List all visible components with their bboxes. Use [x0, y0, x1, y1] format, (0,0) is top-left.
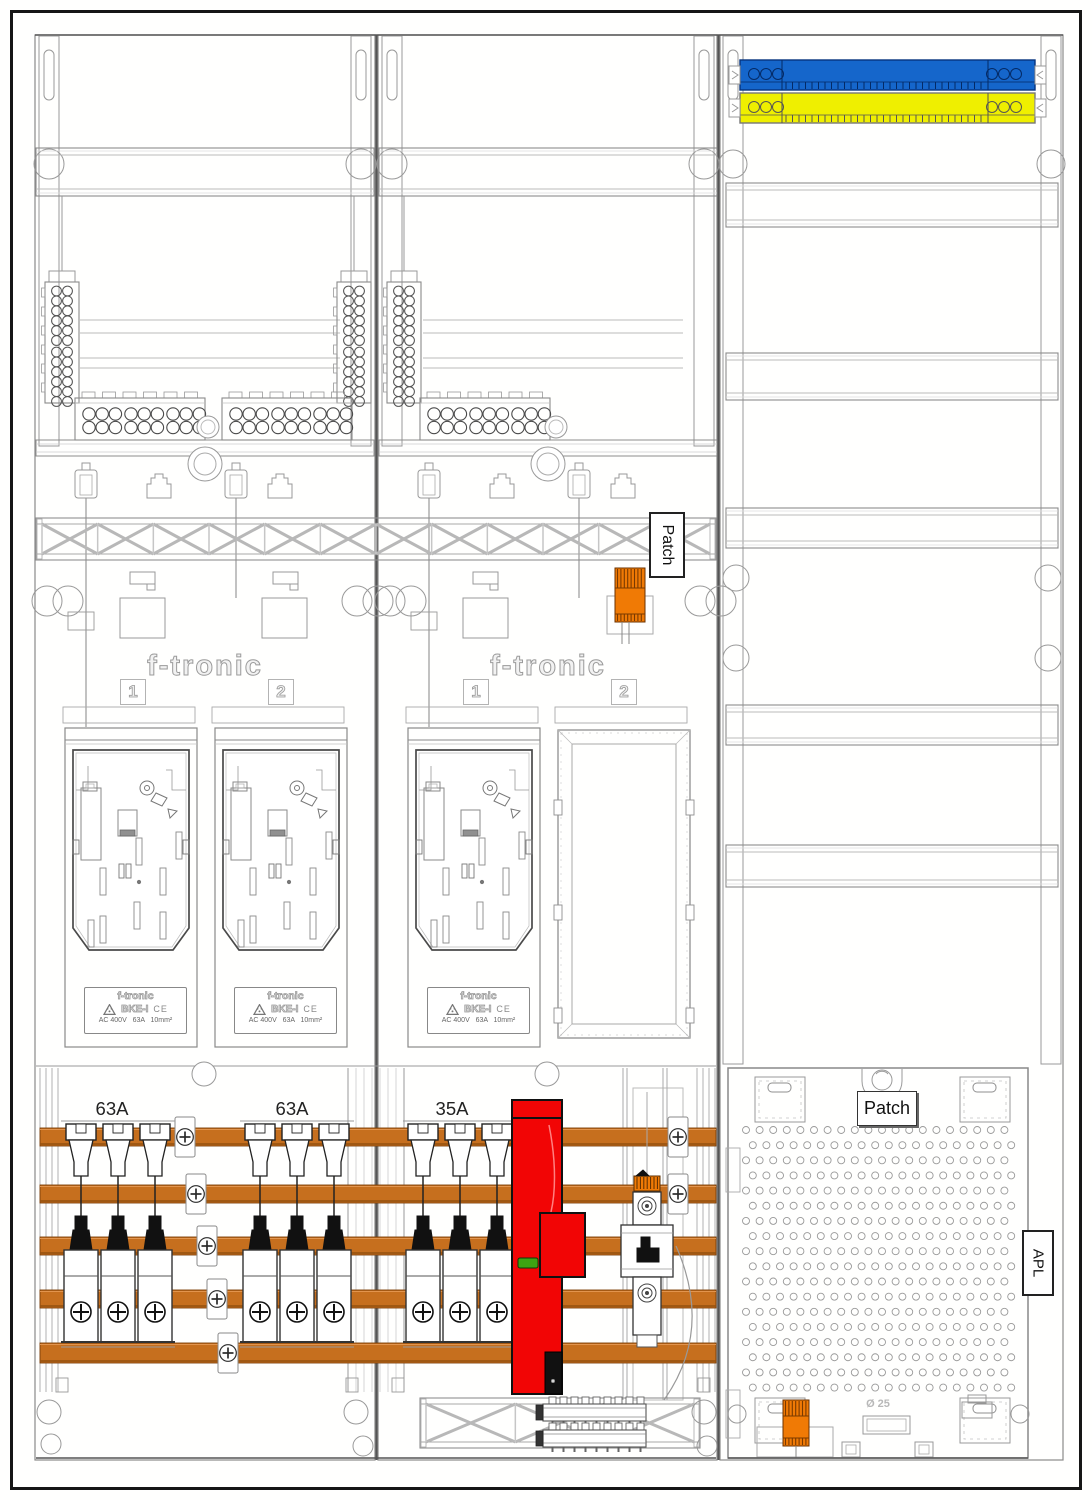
meter-nameplate: f-tronic BKE-I CE AC 400V 63A 10mm² — [427, 987, 530, 1034]
fuse-group-rating-2: 63A — [262, 1098, 322, 1120]
field-number-2-left: 2 — [268, 679, 294, 705]
fuse-switch-group — [61, 1121, 175, 1347]
apl-label-text: APL — [1030, 1249, 1047, 1277]
cabinet-linework — [0, 0, 1092, 1500]
ce-mark: CE — [153, 1004, 168, 1014]
f-tronic-triangle-logo-icon — [253, 1004, 266, 1015]
vertical-terminal-strips — [42, 196, 422, 406]
patch-label-plate: Patch — [857, 1091, 917, 1126]
nameplate-model: BKE-I — [464, 1004, 491, 1015]
field-number-1-left: 1 — [120, 679, 146, 705]
patch-terminal-block — [607, 568, 653, 644]
fuse-switch-group — [240, 1121, 354, 1347]
nameplate-brand: f-tronic — [428, 990, 529, 1002]
apl-label: APL — [1022, 1230, 1054, 1296]
top-structure-panel — [375, 36, 736, 727]
wiring-duct-upper — [36, 518, 716, 560]
meter-cabinet-drawing: f-tronic f-tronic 1 2 1 2 f-tronic BKE-I… — [0, 0, 1092, 1500]
fuse-group-rating-1: 63A — [82, 1098, 142, 1120]
top-structure-panel — [32, 36, 393, 727]
fuse-switch-group — [403, 1121, 517, 1347]
f-tronic-triangle-logo-icon — [446, 1004, 459, 1015]
empty-meter-field — [554, 730, 694, 1038]
meter-nameplate: f-tronic BKE-I CE AC 400V 63A 10mm² — [84, 987, 187, 1034]
right-panel-structure — [719, 36, 1065, 1064]
nameplate-model: BKE-I — [271, 1004, 298, 1015]
patch-label-text: Patch — [658, 525, 676, 566]
f-tronic-triangle-logo-icon — [103, 1004, 116, 1015]
meter-nameplate: f-tronic BKE-I CE AC 400V 63A 10mm² — [234, 987, 337, 1034]
nameplate-brand: f-tronic — [85, 990, 186, 1002]
ce-mark: CE — [303, 1004, 318, 1014]
nameplate-brand: f-tronic — [235, 990, 336, 1002]
horizontal-terminal-strips — [75, 392, 567, 440]
ce-mark: CE — [496, 1004, 511, 1014]
nameplate-ratings: AC 400V 63A 10mm² — [235, 1016, 336, 1026]
neutral-rail-blue — [729, 60, 1046, 90]
diameter-25-label: Ø 25 — [850, 1398, 906, 1410]
pe-rail-yellow — [729, 93, 1046, 123]
nameplate-model: BKE-I — [121, 1004, 148, 1015]
field-number-2-middle: 2 — [611, 679, 637, 705]
nameplate-ratings: AC 400V 63A 10mm² — [85, 1016, 186, 1026]
terminal-strip-block — [536, 1397, 646, 1452]
nameplate-ratings: AC 400V 63A 10mm² — [428, 1016, 529, 1026]
field-number-1-middle: 1 — [463, 679, 489, 705]
patch-label-vertical: Patch — [649, 512, 685, 578]
fuse-group-rating-3: 35A — [422, 1098, 482, 1120]
